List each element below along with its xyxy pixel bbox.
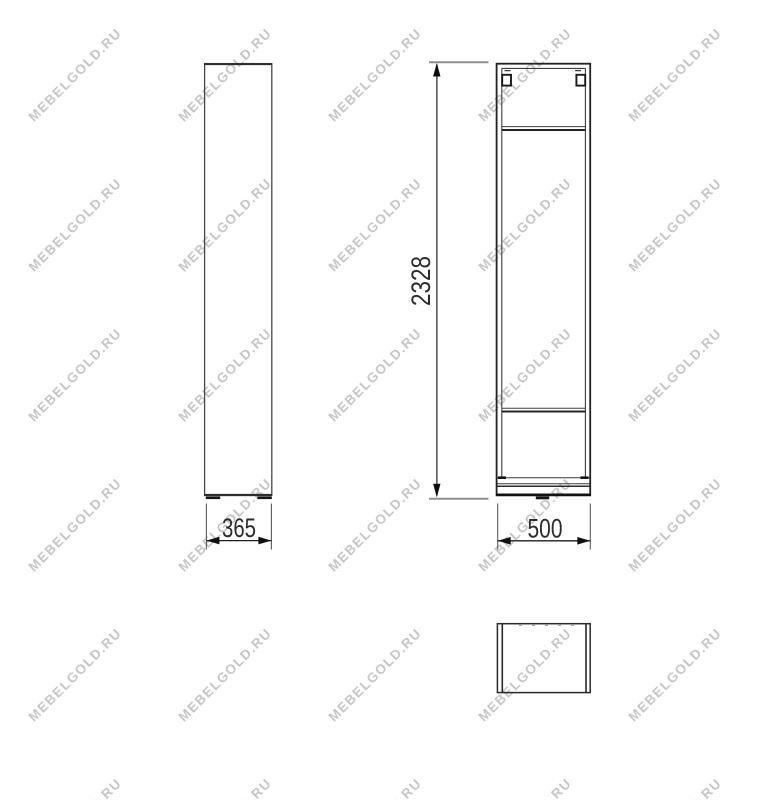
arrowhead-left-icon (206, 537, 219, 545)
top-view-outline (497, 624, 590, 693)
dimension-side-width: 365 (206, 504, 271, 550)
front-view (496, 64, 591, 500)
dimension-front-width: 500 (498, 504, 591, 550)
front-width-value: 500 (528, 514, 563, 544)
side-view-right-foot (257, 497, 271, 500)
arrowhead-right-icon (258, 537, 271, 545)
top-view (497, 624, 590, 693)
arrowhead-right-icon (577, 537, 590, 545)
side-view-left-foot (206, 497, 220, 500)
technical-drawing: 365 (0, 0, 764, 800)
arrowhead-up-icon (433, 63, 440, 77)
right-hanger-bracket (576, 75, 585, 86)
arrowhead-left-icon (498, 537, 511, 545)
front-view-outline (497, 64, 591, 496)
side-width-value: 365 (222, 513, 256, 543)
side-view-outline (205, 64, 272, 496)
drawing-canvas: MEBELGOLD.RUMEBELGOLD.RUMEBELGOLD.RUMEBE… (0, 0, 764, 800)
front-height-value: 2328 (406, 256, 436, 306)
arrowhead-down-icon (433, 484, 440, 498)
front-view-center-foot (536, 497, 549, 500)
left-hanger-bracket (502, 75, 511, 86)
side-view (204, 64, 272, 500)
dimension-front-height: 2328 (406, 62, 489, 498)
